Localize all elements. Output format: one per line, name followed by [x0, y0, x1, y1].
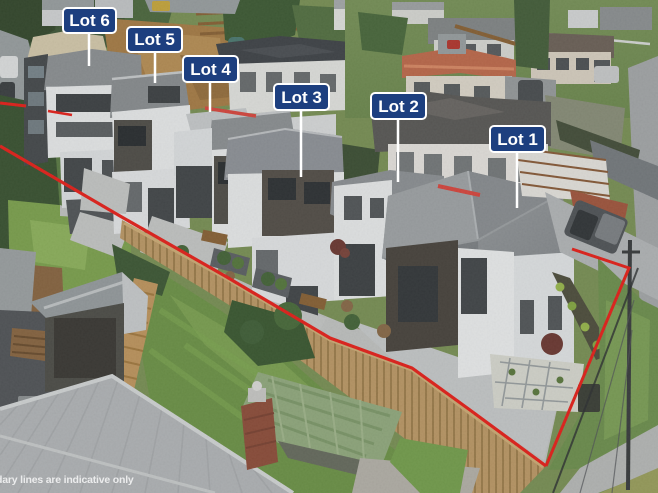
svg-text:dary lines are indicative only: dary lines are indicative only	[0, 474, 134, 486]
svg-text:Lot 6: Lot 6	[69, 11, 110, 30]
svg-text:Lot 5: Lot 5	[134, 30, 175, 49]
svg-text:Lot 1: Lot 1	[497, 130, 538, 149]
svg-text:Lot 2: Lot 2	[378, 97, 419, 116]
svg-text:Lot 4: Lot 4	[190, 60, 231, 79]
svg-text:Lot 3: Lot 3	[281, 88, 322, 107]
